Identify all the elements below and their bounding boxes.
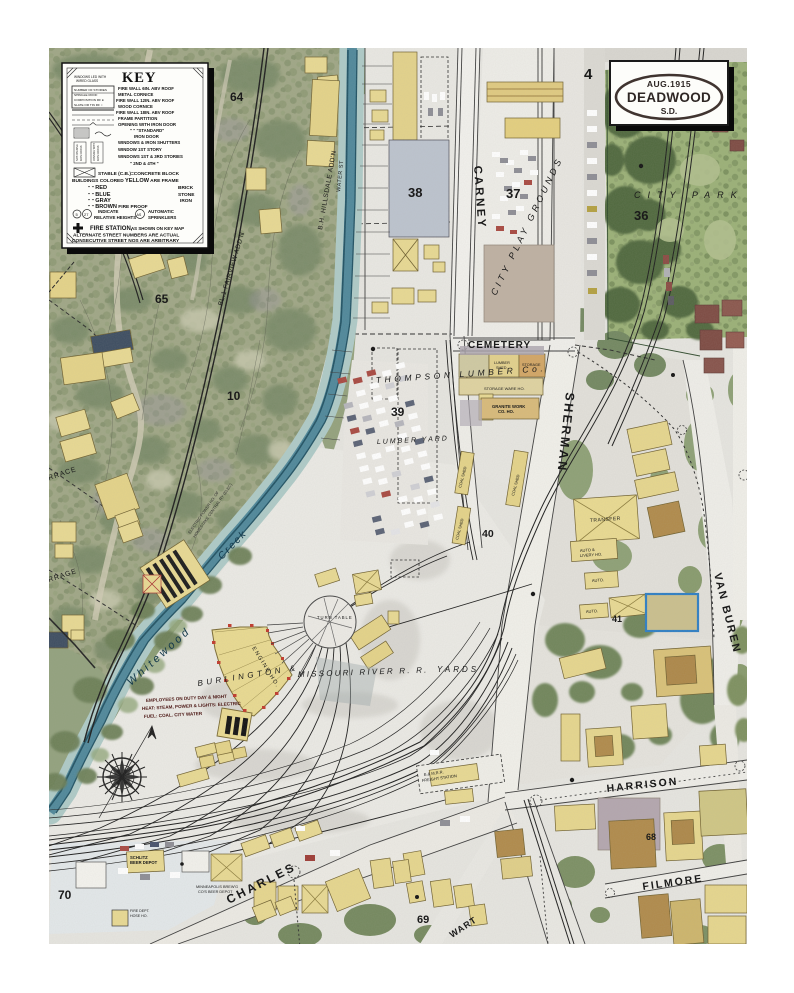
svg-text:CO'S BEER DEPOT: CO'S BEER DEPOT [198, 890, 233, 894]
svg-text:36: 36 [634, 208, 648, 223]
svg-text:IRON DOORS: IRON DOORS [97, 145, 100, 161]
svg-text:MINNEAPOLIS BREW'G: MINNEAPOLIS BREW'G [196, 885, 238, 889]
svg-text:FRAME PARTITION: FRAME PARTITION [118, 116, 157, 121]
svg-text:COMPOSITION RF ●: COMPOSITION RF ● [74, 98, 104, 102]
svg-text:CITY PARK: CITY PARK [634, 190, 744, 200]
svg-text:40: 40 [482, 528, 494, 540]
svg-text:CO. HO.: CO. HO. [498, 409, 514, 414]
svg-text:KEY: KEY [122, 70, 156, 86]
svg-text:WINDOWS & IRON SHUTTERS: WINDOWS & IRON SHUTTERS [118, 140, 180, 145]
svg-text:SLATE OR TIN RF ○: SLATE OR TIN RF ○ [74, 103, 103, 107]
svg-text:10: 10 [227, 389, 241, 403]
svg-text:" " "STANDARD": " " "STANDARD" [130, 128, 164, 133]
svg-text:SHINGLE ROOF: SHINGLE ROOF [74, 93, 97, 97]
svg-text:STONE: STONE [178, 192, 195, 198]
svg-text:" " RED: " " RED [88, 185, 107, 191]
svg-text:BEER DEPOT: BEER DEPOT [130, 860, 158, 865]
svg-text:39: 39 [391, 405, 405, 419]
svg-text:AS: AS [137, 213, 142, 217]
svg-text:68: 68 [646, 832, 656, 842]
svg-text:FIRE STATION,: FIRE STATION, [90, 226, 133, 232]
svg-text:AS SHOWN ON KEY MAP: AS SHOWN ON KEY MAP [131, 226, 184, 231]
svg-text:STABLE (C.B.)=CONCRETE BLOCK: STABLE (C.B.)=CONCRETE BLOCK [98, 171, 180, 177]
svg-text:WINDOWS 1ST & 3RD STORIES: WINDOWS 1ST & 3RD STORIES [118, 154, 183, 159]
svg-text:69: 69 [417, 914, 429, 926]
svg-text:STORAGE: STORAGE [522, 363, 541, 367]
svg-text:FIRE WALL 12IN. ABV ROOF: FIRE WALL 12IN. ABV ROOF [116, 98, 175, 103]
svg-text:WOOD CORNICE: WOOD CORNICE [118, 104, 153, 109]
svg-text:DEADWOOD: DEADWOOD [627, 90, 711, 105]
svg-text:SHED: SHED [496, 366, 507, 370]
svg-text:INDICATE: INDICATE [98, 209, 118, 214]
svg-text:OPENING WITH IRON DOOR: OPENING WITH IRON DOOR [118, 122, 177, 127]
svg-text:HOSE HO.: HOSE HO. [130, 914, 148, 918]
svg-text:41: 41 [612, 614, 622, 624]
svg-text:CEMETERY: CEMETERY [468, 340, 531, 351]
svg-text:CONSECUTIVE STREET NOS ARE ARB: CONSECUTIVE STREET NOS ARE ARBITRARY [72, 238, 180, 244]
svg-text:AUTO.: AUTO. [586, 608, 598, 614]
svg-text:37: 37 [506, 186, 520, 201]
svg-text:IRON: IRON [180, 198, 193, 204]
svg-text:38: 38 [408, 185, 422, 200]
svg-text:AUG.1915: AUG.1915 [647, 79, 691, 89]
svg-text:WINDOW 1ST STORY: WINDOW 1ST STORY [118, 147, 162, 152]
svg-text:IRON DOORS: IRON DOORS [80, 145, 83, 161]
svg-text:NUMBER OF STORIES: NUMBER OF STORIES [74, 88, 107, 92]
svg-text:27: 27 [84, 212, 89, 217]
svg-text:BUILDINGS COLORED YELLOW ARE F: BUILDINGS COLORED YELLOW ARE FRAME [72, 178, 179, 184]
svg-text:RELATIVE HEIGHTS: RELATIVE HEIGHTS [94, 215, 136, 220]
svg-text:SPRINKLERS: SPRINKLERS [148, 215, 176, 220]
svg-text:ALTERNATE STREET NUMBERS ARE A: ALTERNATE STREET NUMBERS ARE ACTUAL [73, 233, 179, 239]
svg-text:AUTO.: AUTO. [592, 577, 604, 583]
svg-text:OPENING WITH: OPENING WITH [93, 143, 96, 161]
svg-text:WIRED GLASS: WIRED GLASS [76, 79, 98, 83]
svg-text:NOT OPENING: NOT OPENING [76, 144, 79, 161]
svg-text:65: 65 [155, 292, 169, 306]
svg-text:FIRE WALL 6IN. ABV ROOF: FIRE WALL 6IN. ABV ROOF [118, 86, 174, 91]
svg-text:" 2ND & 4TH ": " 2ND & 4TH " [130, 161, 159, 166]
svg-text:4: 4 [584, 66, 593, 83]
svg-text:FIRE DEPT.: FIRE DEPT. [130, 909, 150, 913]
svg-text:64: 64 [230, 90, 244, 104]
svg-text:TURN TABLE: TURN TABLE [317, 615, 353, 620]
svg-text:BRICK: BRICK [178, 185, 194, 191]
svg-text:YARDS: YARDS [437, 665, 479, 674]
svg-text:STORAGE WARE HO.: STORAGE WARE HO. [484, 386, 525, 391]
svg-text:METAL CORNICE: METAL CORNICE [118, 92, 154, 97]
svg-text:FIRE WALL 18IN. ABV ROOF: FIRE WALL 18IN. ABV ROOF [116, 110, 175, 115]
svg-text:LUMBER: LUMBER [494, 361, 510, 365]
svg-text:S.D.: S.D. [661, 106, 678, 116]
svg-text:AUTOMATIC: AUTOMATIC [148, 209, 175, 214]
svg-text:IRON DOOR: IRON DOOR [134, 134, 160, 139]
svg-text:70: 70 [58, 888, 72, 902]
